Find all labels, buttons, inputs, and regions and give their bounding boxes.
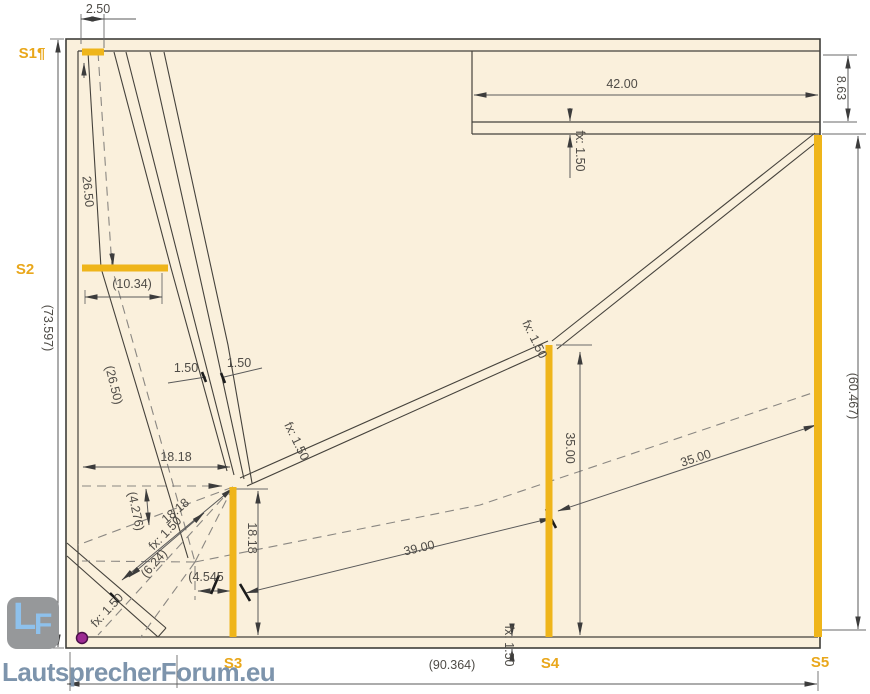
station-label-s2: S2: [16, 261, 34, 278]
dimension-label: (60.467): [846, 373, 860, 420]
dimension-label: (90.364): [429, 658, 476, 672]
dimension-label: 2.50: [86, 2, 110, 16]
dimension-label: 18.18: [160, 450, 191, 464]
dimension-label: (10.34): [112, 277, 152, 291]
dimension-label: fx: 1.50: [573, 131, 587, 172]
dimension-label: 1.50: [227, 356, 251, 370]
cad-drawing-page: 2.5026.50(73.597)(10.34)(26.50)1.501.504…: [0, 0, 870, 694]
station-label-s1: S1¶: [19, 45, 46, 62]
logo-letter-l: L: [13, 596, 36, 639]
logo-letter-f: F: [34, 608, 52, 642]
dimension-label: 42.00: [606, 77, 637, 91]
dimension-label: (73.597): [41, 305, 55, 352]
dimension-label: 8.63: [834, 76, 848, 100]
enclosure-interior: [66, 39, 820, 648]
dimension-label: (4.545: [188, 570, 223, 584]
station-label-s5: S5: [811, 654, 829, 671]
origin-marker: [77, 633, 88, 644]
dimension-label: 1.50: [174, 361, 198, 375]
lf-logo: L F: [7, 597, 59, 649]
dimension-label: 35.00: [563, 432, 577, 463]
enclosure-cross-section-drawing: 2.5026.50(73.597)(10.34)(26.50)1.501.504…: [0, 0, 870, 694]
dimension-label: 18.18: [245, 522, 259, 553]
watermark-site-name: LautsprecherForum.eu: [2, 657, 275, 688]
dimension-label: fx: 1.50: [502, 626, 516, 667]
station-label-s4: S4: [541, 655, 560, 672]
